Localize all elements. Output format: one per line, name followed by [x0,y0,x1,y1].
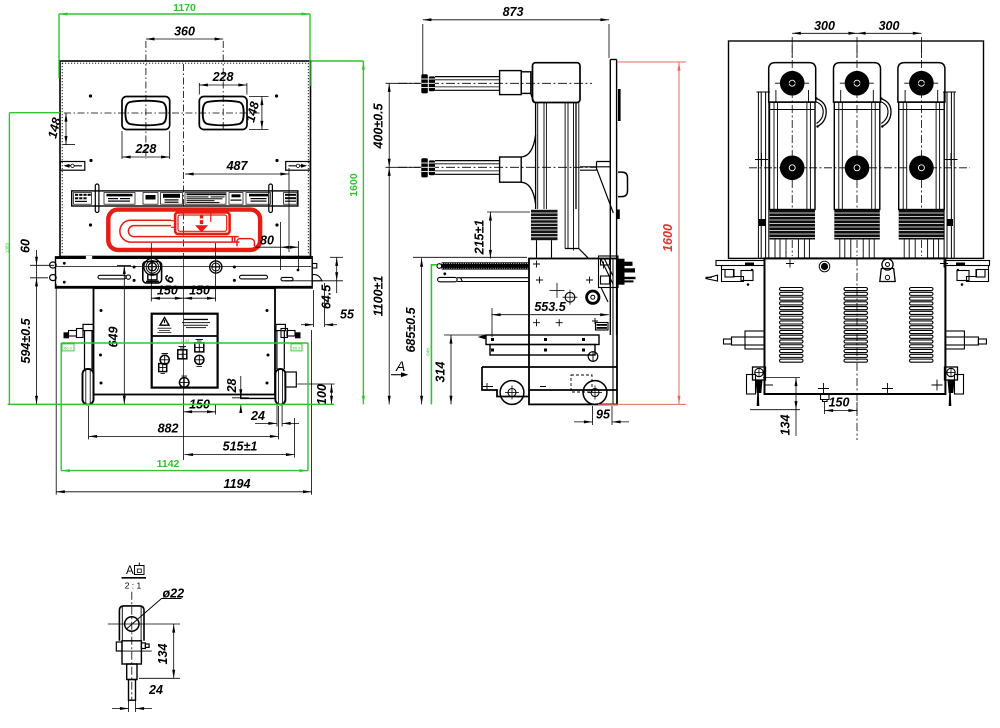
svg-text:2 : 1: 2 : 1 [125,581,142,591]
svg-text:150: 150 [829,396,850,410]
svg-text:55: 55 [340,308,355,322]
svg-text:148: 148 [45,116,64,140]
svg-text:60.0: 60.0 [64,345,73,350]
svg-text:95: 95 [596,408,611,422]
svg-text:150: 150 [157,284,178,298]
svg-text:873: 873 [503,5,524,19]
svg-text:80: 80 [260,234,274,248]
svg-text:134: 134 [156,644,170,665]
svg-text:A: A [395,358,405,374]
svg-text:1142: 1142 [157,458,180,470]
svg-text:24: 24 [148,683,163,697]
svg-text:28: 28 [225,379,239,394]
svg-text:360: 360 [174,25,195,39]
svg-text:24: 24 [250,409,265,423]
svg-text:148: 148 [243,100,262,124]
svg-text:150: 150 [189,284,210,298]
svg-text:60.0: 60.0 [293,345,302,350]
svg-text:60: 60 [19,239,33,253]
svg-text:A: A [126,565,134,577]
svg-text:1194: 1194 [224,477,251,491]
svg-text:1383: 1383 [5,242,10,253]
svg-text:685±0.5: 685±0.5 [404,306,418,352]
svg-text:314: 314 [434,362,448,383]
svg-text:1170: 1170 [173,2,196,14]
svg-text:215±1: 215±1 [473,220,487,256]
svg-text:487: 487 [226,159,249,173]
svg-text:100: 100 [315,384,329,405]
svg-text:300: 300 [814,19,835,33]
svg-text:228: 228 [212,70,234,84]
svg-text:400±0.5: 400±0.5 [371,102,385,149]
svg-text:1600: 1600 [348,173,360,197]
svg-text:134: 134 [779,415,793,436]
svg-text:228: 228 [134,142,156,156]
svg-text:553.5: 553.5 [534,300,566,314]
svg-text:ø22: ø22 [163,587,185,601]
svg-text:1142: 1142 [181,338,190,343]
svg-text:649: 649 [107,327,121,348]
svg-text:594±0.5: 594±0.5 [19,317,33,363]
svg-text:515±1: 515±1 [223,440,258,454]
svg-text:64.5: 64.5 [320,284,334,309]
svg-text:882: 882 [158,422,179,436]
svg-text:1600: 1600 [661,224,675,252]
svg-text:648: 648 [425,348,430,356]
svg-text:1100±1: 1100±1 [371,276,385,317]
svg-text:300: 300 [879,19,900,33]
